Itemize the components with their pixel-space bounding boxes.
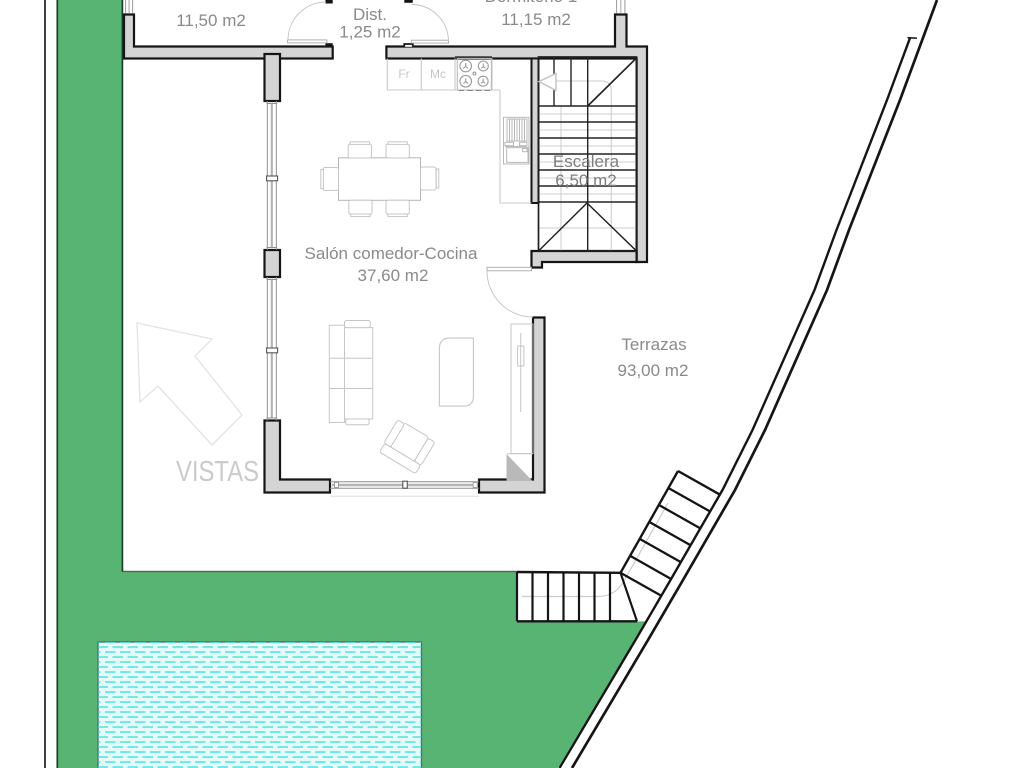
svg-text:11,50 m2: 11,50 m2: [176, 11, 246, 30]
svg-text:1,25 m2: 1,25 m2: [339, 23, 400, 42]
svg-text:11,15 m2: 11,15 m2: [501, 10, 571, 29]
svg-text:Dormitorio 1: Dormitorio 1: [485, 0, 578, 6]
svg-text:Mc: Mc: [430, 67, 446, 81]
svg-text:Dist.: Dist.: [353, 5, 387, 24]
svg-text:6,50 m2: 6,50 m2: [555, 171, 616, 190]
svg-text:Terrazas: Terrazas: [621, 335, 686, 354]
svg-text:93,00 m2: 93,00 m2: [618, 361, 689, 380]
svg-text:Salón comedor-Cocina: Salón comedor-Cocina: [305, 244, 478, 263]
svg-text:Fr: Fr: [398, 67, 409, 81]
svg-text:Escalera: Escalera: [553, 152, 620, 171]
svg-text:37,60 m2: 37,60 m2: [358, 266, 429, 285]
svg-text:VISTAS: VISTAS: [176, 456, 259, 488]
